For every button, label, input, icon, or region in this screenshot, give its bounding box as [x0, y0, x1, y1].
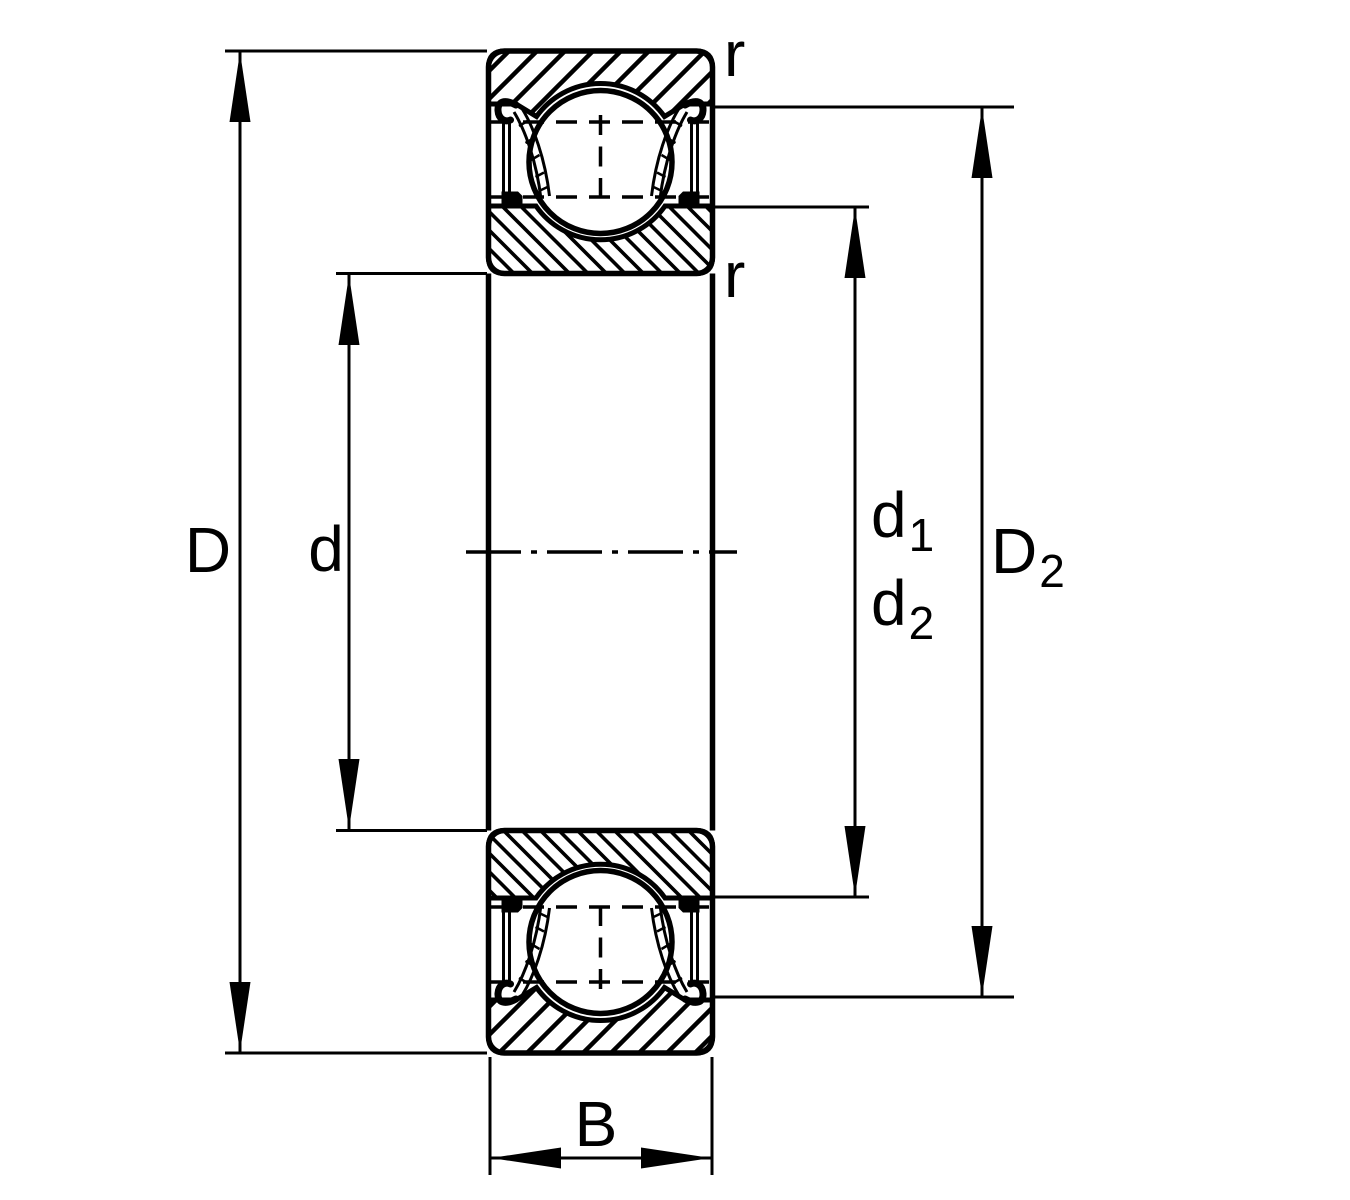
bearing-bottom-section [489, 831, 713, 1054]
bearing-top-section [489, 51, 713, 274]
radius-label-r-outer: r [724, 18, 745, 90]
dimension-label-D: D [185, 514, 231, 586]
extension-lines-d [336, 274, 487, 831]
D2-base: D [991, 515, 1037, 587]
d2-subscript: 2 [909, 597, 935, 649]
d1-subscript: 1 [909, 509, 935, 561]
dimension-label-d: d [308, 513, 344, 585]
drawing-canvas: D d d1 d2 D2 B r r [0, 0, 1350, 1200]
dimension-label-d2: d2 [871, 567, 934, 649]
dimension-label-D2: D2 [991, 515, 1065, 597]
d2-base: d [871, 567, 907, 639]
extension-lines-D2 [714, 107, 1014, 997]
bearing-dimension-drawing: D d d1 d2 D2 B r r [0, 0, 1350, 1200]
extension-lines-D [225, 51, 487, 1053]
dimension-label-B: B [575, 1088, 618, 1160]
D2-subscript: 2 [1039, 545, 1065, 597]
radius-label-r-inner: r [724, 239, 745, 311]
d1-base: d [871, 479, 907, 551]
dimension-label-d1: d1 [871, 479, 934, 561]
